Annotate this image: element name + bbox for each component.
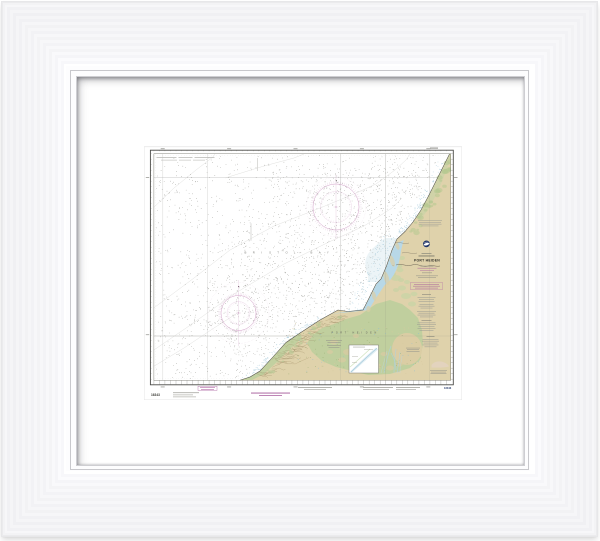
svg-text:16343: 16343: [151, 393, 160, 397]
svg-text:16343: 16343: [444, 386, 452, 390]
svg-text:R: R: [340, 332, 342, 335]
svg-text:S: S: [269, 251, 271, 255]
svg-text:A: A: [319, 251, 321, 255]
svg-text:O: O: [336, 332, 338, 335]
svg-text:Y: Y: [327, 251, 329, 255]
svg-text:B: B: [245, 251, 247, 255]
svg-text:R: R: [253, 251, 255, 255]
svg-text:N: N: [375, 332, 377, 335]
svg-text:H: H: [353, 332, 355, 335]
svg-text:T: T: [277, 251, 279, 255]
svg-text:D: D: [366, 332, 368, 335]
svg-text:PORT HEIDEN: PORT HEIDEN: [414, 259, 440, 263]
svg-text:B: B: [311, 251, 313, 255]
